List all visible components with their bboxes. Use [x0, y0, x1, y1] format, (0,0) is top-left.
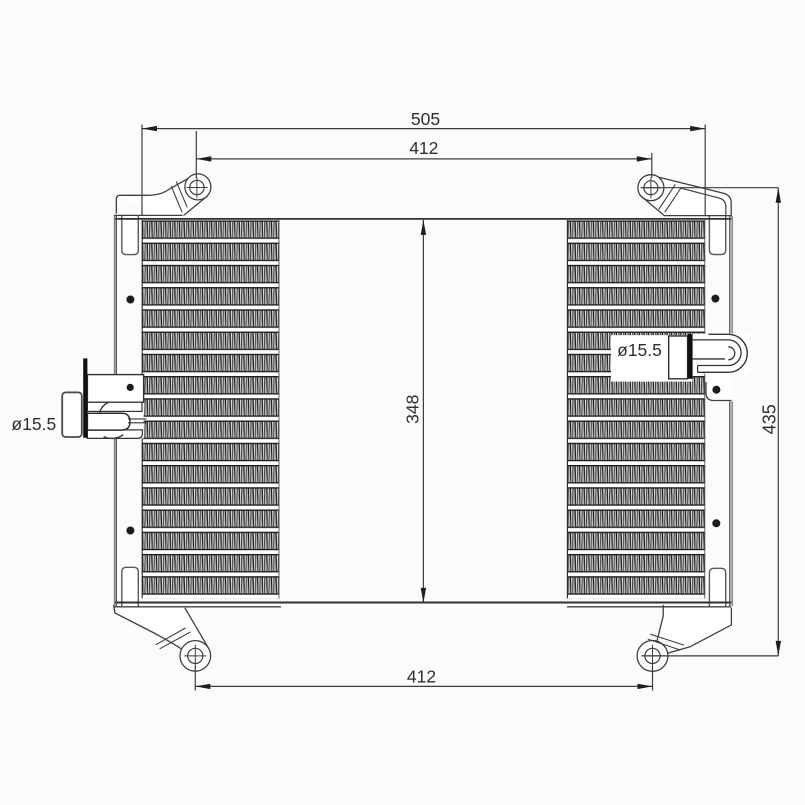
svg-text:412: 412 — [407, 667, 436, 687]
svg-text:435: 435 — [760, 404, 780, 434]
svg-text:ø15.5: ø15.5 — [617, 340, 662, 360]
svg-text:348: 348 — [403, 395, 423, 424]
svg-text:412: 412 — [409, 138, 438, 158]
svg-text:ø15.5: ø15.5 — [11, 414, 56, 434]
svg-text:505: 505 — [411, 109, 440, 129]
